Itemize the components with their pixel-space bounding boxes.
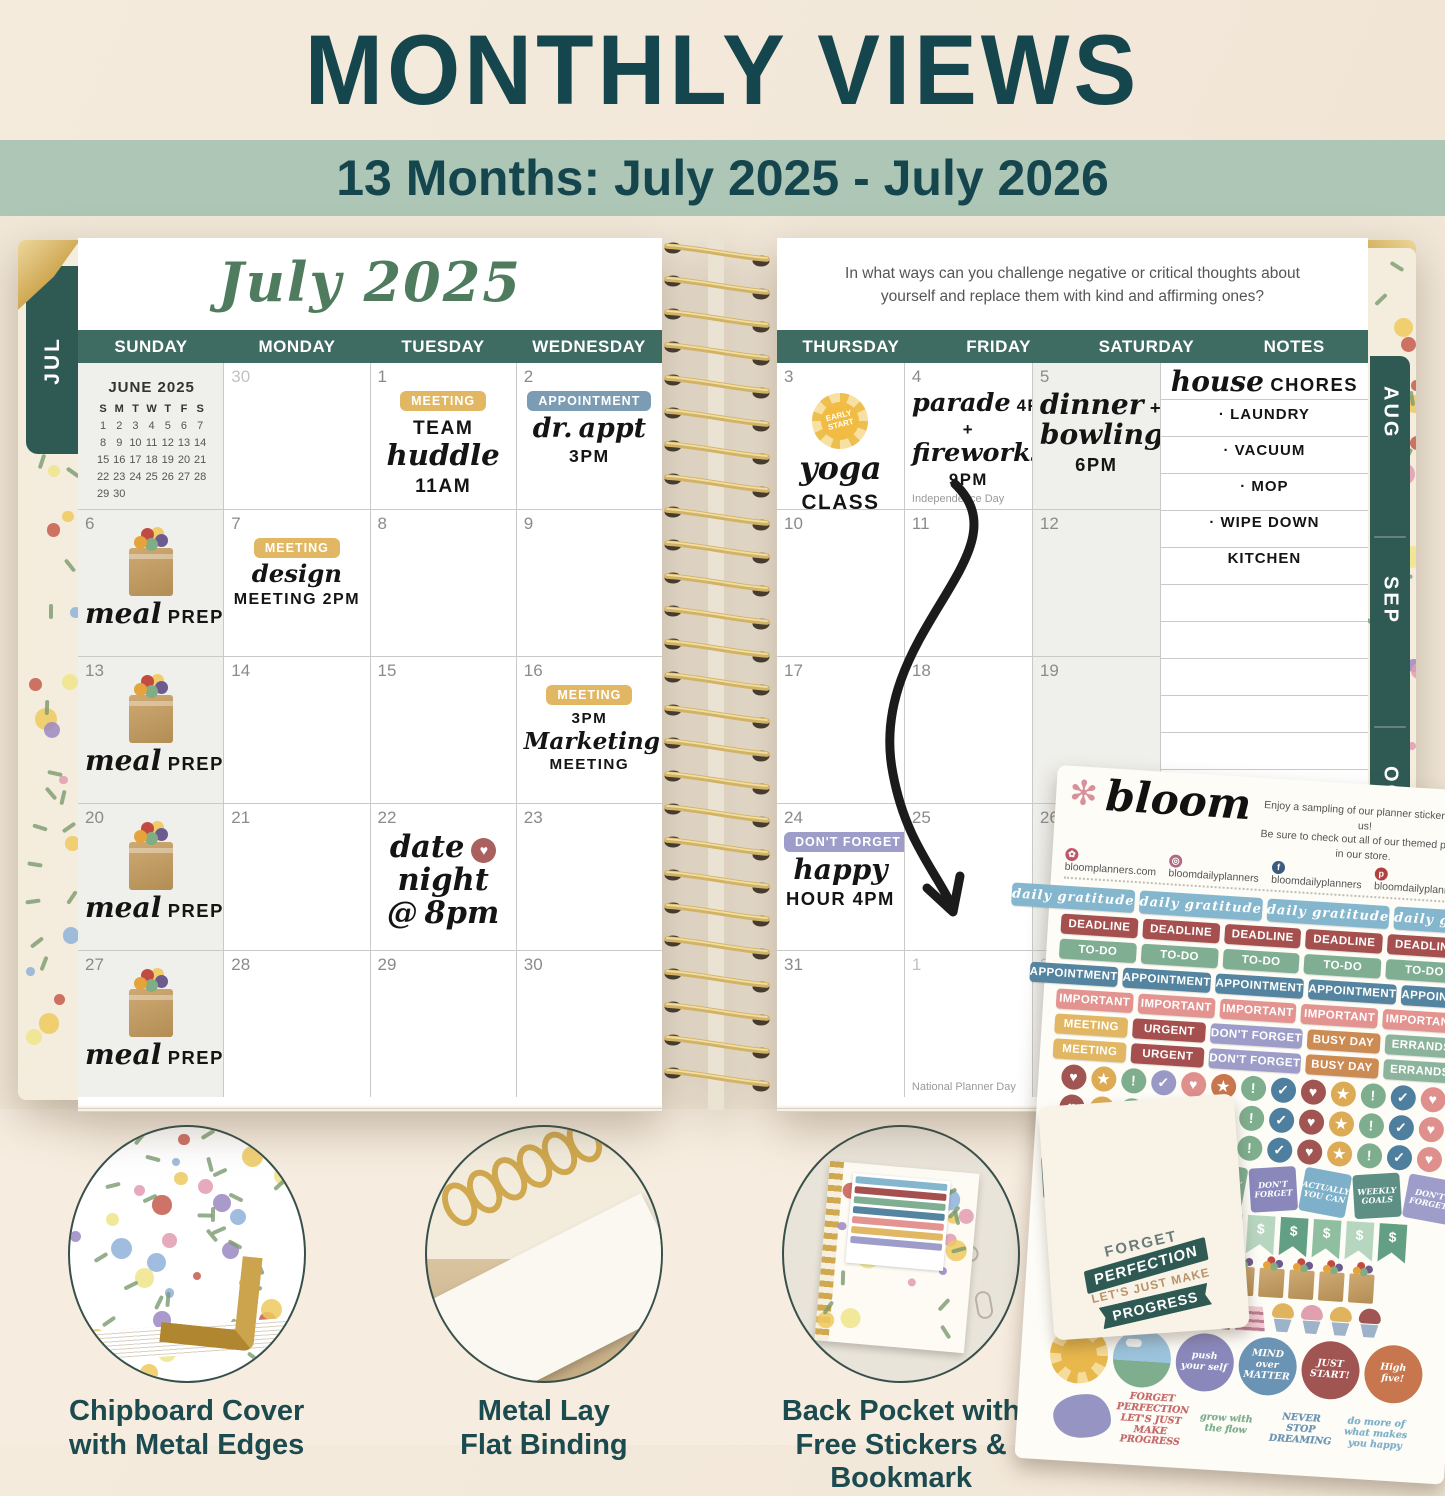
day-header: TUESDAY: [370, 337, 516, 357]
calendar-day-cell: 22date ♥night@ 8pm: [371, 804, 516, 950]
mini-day-number: 27: [176, 471, 192, 483]
mini-day-number: 8: [95, 437, 111, 449]
motivational-round-sticker: JUST START!: [1299, 1339, 1361, 1401]
leaf: [47, 770, 63, 777]
label-sticker: TO-DO: [1141, 943, 1219, 968]
label-sticker: TO-DO: [1304, 954, 1382, 979]
day-number: 19: [1040, 661, 1153, 681]
leaf: [200, 1129, 215, 1140]
flower-dot: [1394, 318, 1413, 337]
flower-dot: [62, 511, 73, 522]
mini-day-number: 4: [144, 420, 160, 432]
icon-dot-sticker: ★: [1330, 1081, 1357, 1108]
flower-dot: [59, 776, 68, 785]
calendar-day-cell: 30: [224, 363, 369, 509]
handwritten-entry: yogaCLASS: [784, 452, 897, 509]
handwritten-entry: 3PMMarketingMEETING: [524, 708, 655, 775]
calendar-day-cell: 20meal PREP: [78, 804, 223, 950]
flower-dot: [242, 1146, 264, 1168]
calendar-day-cell: 10: [777, 510, 904, 656]
leaf: [198, 1214, 213, 1218]
dollar-flag-sticker: $: [1278, 1217, 1308, 1258]
leaf: [146, 1154, 162, 1162]
mini-day-number: 18: [144, 454, 160, 466]
icon-dot-sticker: ✓: [1266, 1137, 1293, 1164]
label-sticker: daily gratitude: [1266, 898, 1390, 929]
label-sticker: DEADLINE: [1305, 929, 1383, 954]
leaf: [1375, 293, 1389, 306]
day-header: THURSDAY: [777, 337, 925, 357]
day-number: 8: [378, 514, 509, 534]
mini-day-number: 5: [160, 420, 176, 432]
flower-dot: [140, 1364, 158, 1382]
leaf: [105, 1182, 121, 1190]
mini-calendar-grid: SMTWTFS123456789101112131415161718192021…: [95, 403, 208, 500]
flower-dot: [79, 1169, 87, 1177]
flower-dot: [70, 1231, 81, 1242]
day-number: 23: [524, 808, 655, 828]
notes-list-item: · VACUUM: [1171, 433, 1358, 469]
flower-dot: [213, 1194, 231, 1212]
mini-day-number: 19: [160, 454, 176, 466]
mini-day-number: 23: [111, 471, 127, 483]
flower-dot: [907, 1278, 916, 1287]
flower-dot: [1411, 380, 1416, 391]
flower-dot: [172, 1158, 180, 1166]
mini-day-number: 7: [192, 420, 208, 432]
feature-caption: Metal LayFlat Binding: [365, 1395, 722, 1462]
mini-day-number: [144, 488, 160, 500]
dollar-flag-sticker: $: [1377, 1223, 1407, 1264]
leaf: [60, 790, 67, 806]
flower-dot: [174, 1172, 188, 1186]
mini-day-number: [192, 488, 208, 500]
flower-dot: [111, 1238, 132, 1259]
day-number: 14: [231, 661, 362, 681]
mini-day-number: 3: [127, 420, 143, 432]
leaf: [1390, 261, 1405, 272]
calendar-day-cell: 3EARLY STARTyogaCLASS: [777, 363, 904, 509]
flower-dot: [198, 1179, 213, 1194]
day-number: 30: [231, 367, 362, 387]
sticker-sheet-in-pocket: [845, 1173, 950, 1271]
mini-day-number: 14: [192, 437, 208, 449]
left-calendar-page: July 2025 SUNDAYMONDAYTUESDAYWEDNESDAY J…: [78, 238, 662, 1106]
label-sticker: DEADLINE: [1142, 918, 1220, 943]
day-number: 28: [231, 955, 362, 975]
day-header: SATURDAY: [1073, 337, 1221, 357]
feature-photo-pocket: [782, 1125, 1020, 1383]
motivational-round-sticker: MIND over MATTER: [1236, 1335, 1298, 1397]
calendar-day-cell: 12: [1033, 510, 1160, 656]
handwritten-entry: meal PREP: [85, 599, 216, 629]
landscape-round-sticker: [1111, 1327, 1173, 1389]
label-sticker: IMPORTANT: [1137, 993, 1215, 1018]
calendar-day-cell: 1National Planner Day: [905, 951, 1032, 1097]
social-link: pbloomdailyplanners: [1374, 867, 1445, 898]
holiday-note: Independence Day: [912, 493, 1004, 505]
dollar-flag-sticker: $: [1344, 1221, 1374, 1262]
leaf: [94, 1252, 109, 1263]
day-number: 25: [912, 808, 1025, 828]
event-label-sticker: MEETING: [400, 391, 486, 411]
cupcake-sticker: [1328, 1306, 1354, 1336]
grocery-bag-sticker: [1347, 1273, 1374, 1304]
mini-day-number: 15: [95, 454, 111, 466]
day-number: 29: [378, 955, 509, 975]
grocery-bag-sticker: [129, 989, 173, 1037]
icon-dot-sticker: ★: [1326, 1140, 1353, 1167]
calendar-day-cell: 5dinner +bowling6PM: [1033, 363, 1160, 509]
handwritten-entry: parade 4PM+fireworks9PM: [912, 390, 1025, 491]
icon-dot-sticker: ♥: [1296, 1139, 1323, 1166]
flower-dot: [39, 1013, 59, 1033]
handwritten-entry: dinner +bowling6PM: [1040, 390, 1153, 475]
mini-day-letter: S: [95, 403, 111, 415]
square-note-sticker: DON'T FORGET: [1401, 1173, 1445, 1225]
mini-day-number: 29: [95, 488, 111, 500]
calendar-day-cell: 9: [517, 510, 662, 656]
icon-dot-sticker: ✓: [1270, 1077, 1297, 1104]
holiday-note: National Planner Day: [912, 1081, 1016, 1093]
flower-dot: [44, 722, 60, 738]
feature-item: Chipboard Coverwith Metal Edges: [8, 1109, 365, 1445]
mini-day-letter: S: [192, 403, 208, 415]
label-sticker: IMPORTANT: [1382, 1009, 1445, 1034]
leaf: [124, 1281, 139, 1291]
mini-day-number: 30: [111, 488, 127, 500]
script-quote-sticker: NEVER STOP DREAMING: [1265, 1411, 1337, 1448]
day-number: 17: [784, 661, 897, 681]
label-sticker: IMPORTANT: [1219, 998, 1297, 1023]
label-sticker: MEETING: [1054, 1013, 1128, 1038]
icon-dot-sticker: ♥: [1298, 1109, 1325, 1136]
tab-separator: [1374, 726, 1406, 728]
mini-day-number: 10: [127, 437, 143, 449]
bloom-flower-icon: ✻: [1068, 776, 1099, 812]
icon-dot-sticker: ✓: [1150, 1069, 1177, 1096]
label-sticker: DEADLINE: [1060, 913, 1138, 938]
social-link: ◎bloomdailyplanners: [1168, 854, 1263, 885]
instagram-icon: ◎: [1169, 854, 1183, 868]
day-number: 22: [378, 808, 509, 828]
mini-month-calendar: JUNE 2025SMTWTFS123456789101112131415161…: [78, 363, 223, 509]
leaf: [64, 558, 76, 572]
grocery-bag-sticker: [129, 842, 173, 890]
event-label-sticker: DON'T FORGET: [784, 832, 904, 852]
grocery-bag-sticker: [129, 548, 173, 596]
icon-dot-sticker: ♥: [1418, 1116, 1445, 1143]
mini-day-number: 20: [176, 454, 192, 466]
label-sticker: APPOINTMENT: [1122, 967, 1211, 992]
label-sticker: BUSY DAY: [1305, 1054, 1379, 1079]
flower-dot: [62, 674, 78, 690]
planner-photo: JUL July 2025 SUNDAYMONDAYTUESDAYWEDNESD…: [0, 216, 1445, 1109]
caption-line: Chipboard Cover: [8, 1395, 365, 1429]
label-sticker: ERRANDS: [1384, 1034, 1445, 1059]
calendar-day-cell: 13meal PREP: [78, 657, 223, 803]
leaf: [206, 1157, 214, 1173]
calendar-day-cell: 1MEETINGTEAMhuddle11AM: [371, 363, 516, 509]
leaf: [938, 1298, 951, 1312]
script-quote-sticker: FORGET PERFECTION LET'S JUST MAKE PROGRE…: [1114, 1391, 1187, 1450]
date-range-subtitle: 13 Months: July 2025 - July 2026: [336, 149, 1109, 207]
feature-photo-binding: [425, 1125, 663, 1383]
flower-dot: [106, 1213, 119, 1226]
leaf: [44, 787, 57, 801]
grocery-bag-sticker: [1287, 1269, 1314, 1300]
bookmark-quote: FORGET PERFECTION LET'S JUST MAKE PROGRE…: [1078, 1222, 1218, 1331]
dollar-flag-sticker: $: [1245, 1215, 1275, 1256]
tab-separator: [1374, 536, 1406, 538]
leaf: [101, 1316, 116, 1328]
calendar-day-cell: 14: [224, 657, 369, 803]
calendar-day-cell: 23: [517, 804, 662, 950]
day-header: NOTES: [1220, 337, 1368, 357]
monthly-tab-aug: AUG: [1370, 386, 1410, 439]
day-number: 15: [378, 661, 509, 681]
calendar-day-cell: 31: [777, 951, 904, 1097]
square-note-sticker: ACTUALLY YOU CAN: [1298, 1166, 1352, 1218]
mini-day-number: 24: [127, 471, 143, 483]
pinterest-icon: p: [1374, 867, 1388, 881]
day-number: 11: [912, 514, 1025, 534]
social-link: fbloomdailyplanners: [1271, 860, 1366, 891]
icon-dot-sticker: ✓: [1268, 1107, 1295, 1134]
handwritten-entry: meal PREP: [85, 1040, 216, 1070]
label-sticker: TO-DO: [1222, 948, 1300, 973]
icon-dot-sticker: ♥: [1060, 1064, 1087, 1091]
icon-dot-sticker: ✓: [1390, 1084, 1417, 1111]
mini-day-letter: M: [111, 403, 127, 415]
icon-dot-sticker: ♥: [1416, 1146, 1443, 1173]
square-note-sticker: WEEKLY GOALS: [1352, 1172, 1402, 1219]
label-sticker: IMPORTANT: [1301, 1004, 1379, 1029]
flower-dot: [838, 1221, 847, 1230]
day-number: 16: [524, 661, 655, 681]
flower-dot: [134, 1185, 146, 1197]
mini-day-number: 28: [192, 471, 208, 483]
icon-dot-sticker: ✓: [1388, 1114, 1415, 1141]
mini-day-letter: T: [160, 403, 176, 415]
cupcake-sticker: [1357, 1308, 1383, 1338]
sticker-sheet-blurb: Enjoy a sampling of our planner stickers…: [1256, 788, 1445, 870]
flower-dot: [152, 1195, 171, 1214]
icon-dot-sticker: ♥: [1180, 1071, 1207, 1098]
label-sticker: ERRANDS: [1383, 1059, 1445, 1084]
calendar-day-cell: 6meal PREP: [78, 510, 223, 656]
cupcake-sticker: [1299, 1304, 1325, 1334]
subtitle-band: 13 Months: July 2025 - July 2026: [0, 140, 1445, 216]
mini-calendar-title: JUNE 2025: [95, 379, 208, 396]
day-number: 9: [524, 514, 655, 534]
day-header: FRIDAY: [925, 337, 1073, 357]
day-number: 3: [784, 367, 897, 387]
flower-dot: [840, 1307, 862, 1329]
label-sticker: BUSY DAY: [1306, 1029, 1380, 1054]
handwritten-entry: meal PREP: [85, 893, 216, 923]
mini-day-number: 21: [192, 454, 208, 466]
calendar-day-cell: 8: [371, 510, 516, 656]
square-note-sticker: DON'T FORGET: [1248, 1166, 1298, 1213]
icon-dot-sticker: ✓: [1386, 1144, 1413, 1171]
leaf: [229, 1192, 244, 1202]
leaf: [39, 956, 48, 971]
label-sticker: daily gratitude: [1393, 906, 1445, 937]
calendar-day-cell: 21: [224, 804, 369, 950]
bookmark: FORGET PERFECTION LET'S JUST MAKE PROGRE…: [1038, 1093, 1250, 1340]
icon-dot-sticker: !: [1238, 1105, 1265, 1132]
notes-list-item: · LAUNDRY: [1171, 397, 1358, 433]
cupcake-sticker: [1270, 1302, 1296, 1332]
caption-line: Flat Binding: [365, 1429, 722, 1463]
leaf: [27, 861, 42, 867]
label-sticker: daily gratitude: [1139, 890, 1263, 921]
icon-dot-sticker: !: [1240, 1075, 1267, 1102]
flower-dot: [63, 927, 79, 943]
facebook-icon: f: [1272, 860, 1286, 874]
label-sticker: URGENT: [1132, 1018, 1206, 1043]
event-label-sticker: MEETING: [254, 538, 340, 558]
leaf: [38, 454, 47, 469]
mini-day-number: 12: [160, 437, 176, 449]
journal-prompt: In what ways can you challenge negative …: [777, 238, 1368, 309]
handwritten-entry: date ♥night@ 8pm: [378, 831, 509, 930]
mini-day-number: 26: [160, 471, 176, 483]
calendar-day-cell: 27meal PREP: [78, 951, 223, 1097]
flower-dot: [47, 523, 61, 537]
motivational-round-sticker: push your self: [1174, 1331, 1236, 1393]
flower-dot: [230, 1209, 246, 1225]
social-link: ✿bloomplanners.com: [1064, 847, 1160, 878]
leaf: [62, 821, 77, 833]
event-label-sticker: MEETING: [546, 685, 632, 705]
gold-metal-corner: [159, 1248, 262, 1351]
mini-day-number: 16: [111, 454, 127, 466]
flower-dot: [48, 465, 60, 477]
hero-header: MONTHLY VIEWS: [0, 0, 1445, 140]
mini-day-number: 25: [144, 471, 160, 483]
calendar-day-cell: 15: [371, 657, 516, 803]
mini-day-number: 1: [95, 420, 111, 432]
leaf: [213, 1167, 228, 1177]
label-sticker: APPOINTMENT: [1308, 979, 1397, 1004]
label-sticker: DON'T FORGET: [1210, 1023, 1302, 1049]
label-sticker: MEETING: [1053, 1038, 1127, 1063]
calendar-day-cell: 30: [517, 951, 662, 1097]
flower-dot: [29, 678, 42, 691]
mini-day-number: [127, 488, 143, 500]
label-sticker: URGENT: [1131, 1043, 1205, 1068]
weekday-header-row-right: THURSDAYFRIDAYSATURDAYNOTES: [777, 330, 1368, 363]
grocery-bag-sticker: [129, 695, 173, 743]
heart-sticker: ♥: [471, 838, 496, 863]
icon-dot-sticker: !: [1120, 1067, 1147, 1094]
calendar-day-cell: 11: [905, 510, 1032, 656]
mini-day-number: 2: [111, 420, 127, 432]
flower-dot: [178, 1134, 189, 1145]
gold-spiral-binding: [658, 234, 776, 1110]
leaf: [45, 700, 49, 715]
calendar-day-cell: 2APPOINTMENTdr. appt3PM: [517, 363, 662, 509]
label-sticker: DEADLINE: [1387, 934, 1445, 959]
paperclip: [974, 1290, 995, 1320]
month-title: July 2025: [78, 250, 662, 314]
mini-day-letter: T: [127, 403, 143, 415]
flower-dot: [54, 994, 65, 1005]
flower-dot: [26, 1029, 42, 1045]
weekday-header-row-left: SUNDAYMONDAYTUESDAYWEDNESDAY: [78, 330, 662, 363]
label-sticker: APPOINTMENT: [1401, 985, 1445, 1010]
day-number: 10: [784, 514, 897, 534]
caption-line: with Metal Edges: [8, 1429, 365, 1463]
calendar-day-cell: 18: [905, 657, 1032, 803]
tab-label: AUG: [1379, 386, 1402, 439]
day-number: 21: [231, 808, 362, 828]
bloom-brand-logo: bloom: [1105, 778, 1253, 823]
handwritten-entry: TEAMhuddle11AM: [378, 414, 509, 497]
icon-dot-sticker: !: [1356, 1142, 1383, 1169]
monthly-tab-sep: SEP: [1370, 576, 1410, 625]
day-header: WEDNESDAY: [516, 337, 662, 357]
mini-day-letter: W: [144, 403, 160, 415]
leaf: [25, 898, 40, 904]
flower-dot: [958, 1208, 974, 1224]
label-sticker: TO-DO: [1385, 959, 1445, 984]
handwritten-entry: house CHORES: [1171, 367, 1358, 397]
calendar-day-cell: 28: [224, 951, 369, 1097]
label-sticker: TO-DO: [1059, 938, 1137, 963]
calendar-day-cell: 7MEETINGdesignMEETING 2PM: [224, 510, 369, 656]
flower-dot: [135, 1268, 154, 1287]
day-number: 4: [912, 367, 1025, 387]
day-number: 7: [231, 514, 362, 534]
page-title: MONTHLY VIEWS: [305, 13, 1140, 127]
caption-line: Metal Lay: [365, 1395, 722, 1429]
flower-dot: [26, 967, 35, 976]
script-quote-sticker: grow with the flow: [1190, 1412, 1261, 1438]
flower-dot: [261, 1299, 282, 1320]
day-number: 12: [1040, 514, 1153, 534]
handwritten-entry: happyHOUR 4PM: [784, 855, 897, 910]
calendar-day-cell: 17: [777, 657, 904, 803]
day-number: 1: [912, 955, 1025, 975]
feature-photo-cover: [68, 1125, 306, 1383]
handwritten-entry: dr. appt3PM: [524, 414, 655, 467]
grocery-bag-sticker: [1258, 1267, 1285, 1298]
handwritten-entry: designMEETING 2PM: [231, 561, 362, 609]
day-number: 13: [85, 661, 216, 681]
grocery-bag-sticker: [1317, 1271, 1344, 1302]
icon-dot-sticker: !: [1360, 1082, 1387, 1109]
day-header: MONDAY: [224, 337, 370, 357]
motivational-round-sticker: High five!: [1362, 1343, 1424, 1405]
label-sticker: APPOINTMENT: [1215, 973, 1304, 998]
feature-caption: Chipboard Coverwith Metal Edges: [8, 1395, 365, 1462]
calendar-day-cell: 4parade 4PM+fireworks9PMIndependence Day: [905, 363, 1032, 509]
day-number: 6: [85, 514, 216, 534]
label-sticker: IMPORTANT: [1056, 988, 1134, 1013]
day-number: 5: [1040, 367, 1153, 387]
calendar-day-cell: 16MEETING3PMMarketingMEETING: [517, 657, 662, 803]
icon-dot-sticker: ♥: [1300, 1079, 1327, 1106]
day-number: 18: [912, 661, 1025, 681]
day-number: 24: [784, 808, 897, 828]
leaf: [66, 891, 78, 906]
leaf: [247, 1352, 261, 1364]
calendar-day-cell: 24DON'T FORGEThappyHOUR 4PM: [777, 804, 904, 950]
script-quote-sticker: do more of what makes you happy: [1340, 1416, 1412, 1453]
